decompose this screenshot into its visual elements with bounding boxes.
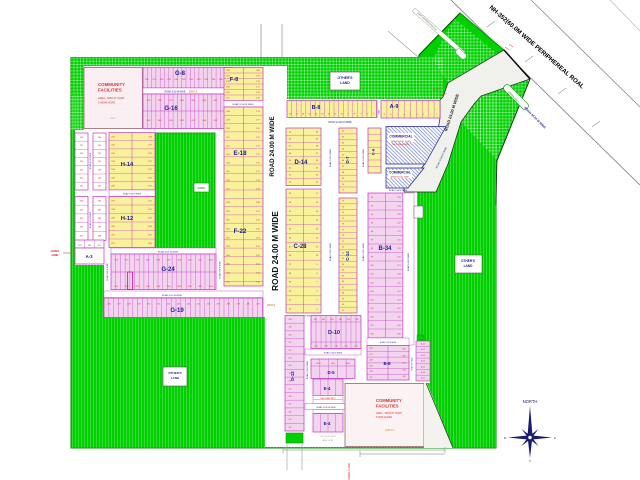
svg-text:133: 133 xyxy=(403,369,406,371)
svg-text:ROAD 9.00 M WIDE: ROAD 9.00 M WIDE xyxy=(389,189,408,192)
svg-text:H-12: H-12 xyxy=(121,216,134,222)
svg-text:153: 153 xyxy=(289,357,292,359)
svg-text:OTHER'S: OTHER'S xyxy=(168,371,181,375)
svg-text:ROAD 9.00 M WIDE: ROAD 9.00 M WIDE xyxy=(329,148,332,167)
svg-text:155: 155 xyxy=(289,373,292,375)
svg-text:ROAD 9.00 M WIDE: ROAD 9.00 M WIDE xyxy=(380,341,397,344)
svg-text:ROAD 9.00 M WIDE: ROAD 9.00 M WIDE xyxy=(329,242,332,261)
svg-text:ROAD 12.00 M WIDE: ROAD 12.00 M WIDE xyxy=(316,406,336,409)
svg-text:WATT/ 1: WATT/ 1 xyxy=(385,429,395,432)
svg-text:H-14: H-14 xyxy=(121,162,134,168)
svg-text:71: 71 xyxy=(342,190,344,192)
svg-text:DW/13: DW/13 xyxy=(189,90,198,94)
svg-text:AREA 2640.87 SQMT: AREA 2640.87 SQMT xyxy=(391,140,411,143)
svg-text:70: 70 xyxy=(342,184,344,186)
svg-text:86: 86 xyxy=(342,281,344,283)
svg-text:B-8: B-8 xyxy=(383,361,391,366)
svg-text:COMMERCIAL: COMMERCIAL xyxy=(389,171,411,175)
svg-text:135: 135 xyxy=(403,355,406,357)
svg-text:FACILITIES: FACILITIES xyxy=(98,88,122,93)
svg-text:ROAD 12.00 M WIDE: ROAD 12.00 M WIDE xyxy=(328,121,352,124)
svg-text:ROAD 9.00 M WIDE: ROAD 9.00 M WIDE xyxy=(106,263,109,281)
svg-text:G-8: G-8 xyxy=(175,71,186,77)
svg-text:DW/13: DW/13 xyxy=(267,303,275,307)
svg-text:N-75 49x.47 SQMT: N-75 49x.47 SQMT xyxy=(320,436,336,438)
svg-text:63: 63 xyxy=(342,142,344,144)
svg-text:5.0846 ACRES: 5.0846 ACRES xyxy=(376,416,392,419)
svg-text:WATT: WATT xyxy=(110,117,117,120)
svg-text:E-4: E-4 xyxy=(324,421,331,426)
svg-text:LAND: LAND xyxy=(340,81,350,85)
svg-text:140: 140 xyxy=(344,346,347,348)
svg-text:0.46049 ACRE: 0.46049 ACRE xyxy=(98,101,115,105)
svg-text:LINE: LINE xyxy=(52,253,59,257)
svg-text:RAJ KISHAN PATTI: RAJ KISHAN PATTI xyxy=(321,397,336,400)
svg-text:G-16: G-16 xyxy=(164,106,178,112)
svg-text:147: 147 xyxy=(354,346,357,348)
svg-text:143: 143 xyxy=(330,319,333,321)
svg-text:D-14: D-14 xyxy=(294,160,308,166)
svg-text:LAND: LAND xyxy=(464,264,474,268)
svg-text:137: 137 xyxy=(314,346,317,348)
svg-text:139: 139 xyxy=(334,346,337,348)
svg-text:126: 126 xyxy=(370,348,373,350)
svg-text:ROAD 9.00 M WIDE: ROAD 9.00 M WIDE xyxy=(362,242,365,261)
svg-text:148: 148 xyxy=(289,319,292,321)
svg-text:64: 64 xyxy=(342,148,344,150)
svg-text:ROAD 9.00 M WIDE: ROAD 9.00 M WIDE xyxy=(407,252,410,271)
svg-text:79: 79 xyxy=(342,241,344,243)
svg-text:OTHER'S: OTHER'S xyxy=(461,259,475,263)
svg-text:162: 162 xyxy=(289,427,292,429)
svg-text:B-34: B-34 xyxy=(378,246,392,252)
svg-text:140.1: 140.1 xyxy=(316,363,321,365)
svg-text:65: 65 xyxy=(342,154,344,156)
svg-text:144: 144 xyxy=(339,319,342,321)
svg-text:89: 89 xyxy=(342,298,344,300)
svg-text:150: 150 xyxy=(289,334,292,336)
svg-text:ROAD 12.00 M WIDE: ROAD 12.00 M WIDE xyxy=(232,103,254,106)
svg-text:A-9: A-9 xyxy=(390,104,399,110)
svg-text:ROAD 9.00 M WIDE: ROAD 9.00 M WIDE xyxy=(362,148,365,167)
svg-text:ROAD 9.00 M WIDE: ROAD 9.00 M WIDE xyxy=(162,294,182,297)
svg-text:C-6: C-6 xyxy=(371,148,376,155)
svg-text:LAND: LAND xyxy=(171,376,180,380)
svg-text:F-8: F-8 xyxy=(230,77,238,83)
svg-text:80: 80 xyxy=(342,247,344,249)
svg-text:76: 76 xyxy=(342,224,344,226)
svg-text:A-3: A-3 xyxy=(85,254,93,259)
svg-text:AREA : 9481.47 SQMT: AREA : 9481.47 SQMT xyxy=(98,96,125,100)
svg-text:140.2: 140.2 xyxy=(331,363,336,365)
svg-text:COMMUNITY: COMMUNITY xyxy=(376,398,402,403)
svg-text:145: 145 xyxy=(347,319,350,321)
svg-text:AREA 1854.62 SQMT: AREA 1854.62 SQMT xyxy=(391,176,410,179)
svg-text:67: 67 xyxy=(342,166,344,168)
svg-text:D-7: D-7 xyxy=(345,156,350,164)
svg-text:ROAD 9.00 M WIDE: ROAD 9.00 M WIDE xyxy=(158,251,178,254)
svg-text:72: 72 xyxy=(342,201,344,203)
svg-text:ROAD 9.0 M WIDE: ROAD 9.0 M WIDE xyxy=(89,152,92,169)
svg-text:68: 68 xyxy=(342,172,344,174)
svg-text:81: 81 xyxy=(342,252,344,254)
svg-text:C-28: C-28 xyxy=(293,244,307,250)
svg-text:AREA : 49253.87 SQMT: AREA : 49253.87 SQMT xyxy=(376,412,402,415)
svg-text:ROAD 9.00 M WIDE: ROAD 9.00 M WIDE xyxy=(219,261,222,279)
svg-text:D-10: D-10 xyxy=(328,330,340,336)
svg-text:D-5: D-5 xyxy=(327,370,335,375)
svg-text:C-14: C-14 xyxy=(345,251,350,261)
svg-text:84: 84 xyxy=(342,270,344,272)
svg-text:COMMERCIAL: COMMERCIAL xyxy=(389,135,412,139)
svg-text:136: 136 xyxy=(403,349,406,351)
svg-text:FACILITIES: FACILITIES xyxy=(376,404,399,409)
svg-text:160: 160 xyxy=(289,411,292,413)
svg-text:(IN 0.3080 ACRES): (IN 0.3080 ACRES) xyxy=(392,143,410,146)
svg-text:129: 129 xyxy=(370,365,373,367)
svg-text:91: 91 xyxy=(342,310,344,312)
svg-text:NORTH: NORTH xyxy=(523,399,538,404)
svg-text:E-4: E-4 xyxy=(324,386,331,391)
svg-text:OTHER'S: OTHER'S xyxy=(338,76,354,80)
svg-text:82: 82 xyxy=(342,258,344,260)
svg-text:ROAD 9.00 M WIDE: ROAD 9.00 M WIDE xyxy=(306,360,309,379)
svg-text:87: 87 xyxy=(342,287,344,289)
svg-text:77: 77 xyxy=(342,229,344,231)
svg-text:90: 90 xyxy=(342,304,344,306)
svg-text:62: 62 xyxy=(342,137,344,139)
svg-text:F-22: F-22 xyxy=(234,228,247,235)
svg-text:ROAD 9.0 M WIDE: ROAD 9.0 M WIDE xyxy=(89,211,92,228)
svg-text:83: 83 xyxy=(342,264,344,266)
svg-text:131: 131 xyxy=(370,377,373,379)
svg-text:COMMUNITY: COMMUNITY xyxy=(98,82,125,87)
svg-text:G-19: G-19 xyxy=(170,308,184,314)
svg-text:73: 73 xyxy=(342,206,344,208)
svg-text:88: 88 xyxy=(342,293,344,295)
svg-text:141: 141 xyxy=(314,319,317,321)
svg-text:TAWRU LINE: TAWRU LINE xyxy=(347,463,351,480)
svg-text:157: 157 xyxy=(289,388,292,390)
svg-text:PARK: PARK xyxy=(198,186,206,190)
svg-text:142: 142 xyxy=(322,319,325,321)
svg-text:69: 69 xyxy=(342,178,344,180)
svg-text:134: 134 xyxy=(403,362,406,364)
svg-text:ROAD 9.00 M WIDE: ROAD 9.00 M WIDE xyxy=(165,90,186,93)
svg-text:75: 75 xyxy=(342,218,344,220)
svg-text:146: 146 xyxy=(355,319,358,321)
svg-text:61: 61 xyxy=(342,131,344,133)
svg-text:ROAD 24.00 M WIDE: ROAD 24.00 M WIDE xyxy=(269,116,276,176)
svg-text:151: 151 xyxy=(289,342,292,344)
svg-text:158: 158 xyxy=(289,396,292,398)
svg-text:128: 128 xyxy=(370,360,373,362)
svg-text:130: 130 xyxy=(370,371,373,373)
svg-text:161: 161 xyxy=(289,419,292,421)
svg-text:WAQT SQMT: WAQT SQMT xyxy=(323,439,335,442)
svg-text:144.1: 144.1 xyxy=(345,363,350,365)
svg-text:156: 156 xyxy=(289,381,292,383)
svg-text:ROAD 24.00 M WIDE: ROAD 24.00 M WIDE xyxy=(271,211,280,291)
svg-text:78: 78 xyxy=(342,235,344,237)
svg-text:127: 127 xyxy=(370,354,373,356)
svg-text:149: 149 xyxy=(289,327,292,329)
svg-text:B-8: B-8 xyxy=(312,105,321,111)
svg-text:G-24: G-24 xyxy=(161,267,175,273)
svg-text:154: 154 xyxy=(289,365,292,367)
svg-text:138: 138 xyxy=(324,346,327,348)
svg-text:ROAD 9.00 M WIDE: ROAD 9.00 M WIDE xyxy=(123,193,142,196)
svg-text:152: 152 xyxy=(289,350,292,352)
svg-text:ROAD 9 M WIDE: ROAD 9 M WIDE xyxy=(411,357,414,371)
svg-text:ROAD 9.00 M WIDE: ROAD 9.00 M WIDE xyxy=(324,352,343,355)
svg-text:66: 66 xyxy=(342,160,344,162)
svg-text:E-18: E-18 xyxy=(233,150,247,157)
svg-text:159: 159 xyxy=(289,404,292,406)
svg-text:132: 132 xyxy=(403,376,406,378)
svg-text:74: 74 xyxy=(342,212,344,214)
svg-text:85: 85 xyxy=(342,275,344,277)
